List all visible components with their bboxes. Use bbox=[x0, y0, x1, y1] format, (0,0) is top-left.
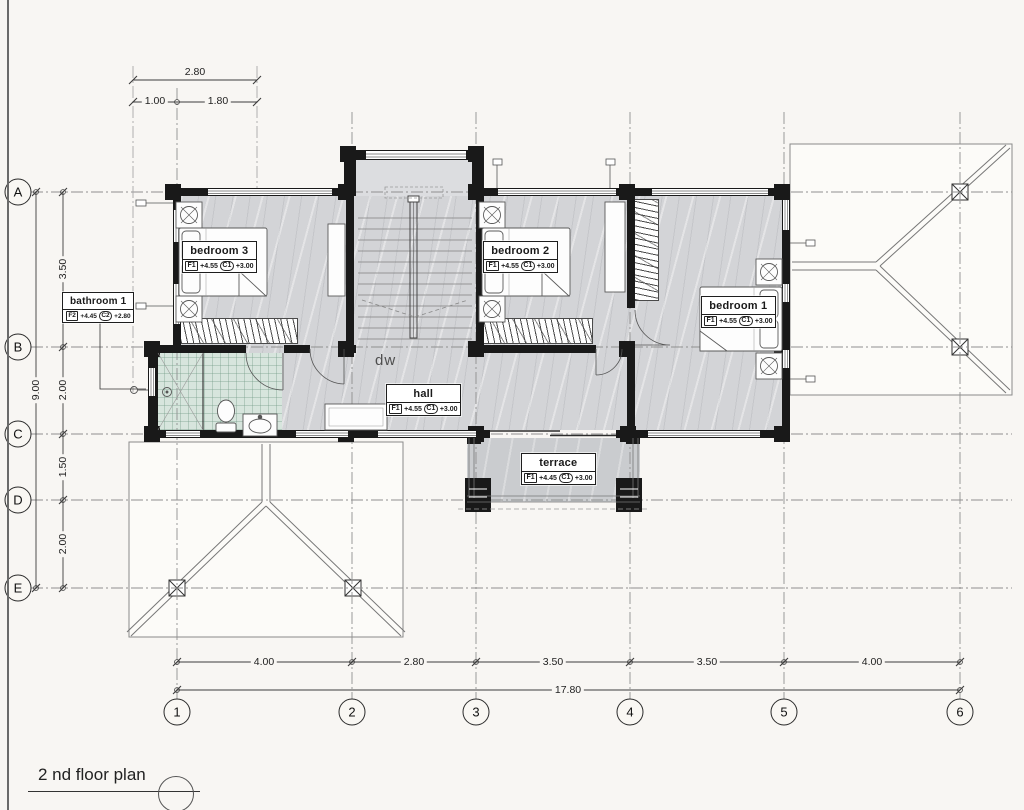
plan-linework bbox=[0, 0, 1024, 810]
dim-bottom-total: 17.80 bbox=[552, 684, 584, 696]
toilet-icon bbox=[218, 400, 235, 422]
floor-level: +4.55 bbox=[200, 263, 218, 270]
room-name: terrace bbox=[522, 454, 595, 472]
room-name: bedroom 2 bbox=[484, 242, 557, 260]
ceiling-level: +3.00 bbox=[537, 263, 555, 270]
roof-left bbox=[127, 442, 405, 637]
dim-bottom-seg-3: 3.50 bbox=[540, 656, 566, 668]
grid-bubble-col-3: 3 bbox=[463, 699, 490, 726]
grid-bubble-col-1: 1 bbox=[164, 699, 191, 726]
room-levels: F1 +4.55 C1 +3.00 bbox=[484, 260, 557, 272]
grid-bubble-row-b: B bbox=[5, 334, 32, 361]
room-name: hall bbox=[387, 385, 460, 403]
floor-tag: F1 bbox=[389, 404, 402, 414]
dim-top-seg-1: 1.00 bbox=[142, 95, 168, 107]
sink-icon bbox=[243, 414, 277, 436]
ceiling-tag: C1 bbox=[521, 261, 535, 271]
room-levels: F1 +4.55 C1 +3.00 bbox=[387, 403, 460, 415]
ceiling-tag: C2 bbox=[99, 311, 112, 321]
page-border-line bbox=[7, 0, 9, 810]
room-levels: F1 +4.55 C1 +3.00 bbox=[183, 260, 256, 272]
ceiling-tag: C1 bbox=[739, 316, 753, 326]
room-name: bedroom 1 bbox=[702, 297, 775, 315]
dim-bottom-seg-4: 3.50 bbox=[694, 656, 720, 668]
floor-tag: F2 bbox=[66, 311, 79, 321]
roof-right bbox=[790, 144, 1012, 395]
ceiling-level: +3.00 bbox=[236, 263, 254, 270]
floor-tag: F1 bbox=[524, 473, 537, 483]
room-label-bedroom-3: bedroom 3 F1 +4.55 C1 +3.00 bbox=[182, 241, 257, 273]
floor-level: +4.55 bbox=[501, 263, 519, 270]
floor-level: +4.45 bbox=[80, 313, 96, 320]
staircase bbox=[358, 187, 472, 339]
bathroom-label-leader bbox=[100, 322, 146, 389]
dim-bottom-seg-2: 2.80 bbox=[401, 656, 427, 668]
ceiling-tag: C1 bbox=[559, 473, 573, 483]
room-label-bathroom-1: bathroom 1 F2 +4.45 C2 +2.80 bbox=[62, 292, 134, 323]
dim-bottom-seg-5: 4.00 bbox=[859, 656, 885, 668]
dim-top-seg-2: 1.80 bbox=[205, 95, 231, 107]
grid-bubble-row-e: E bbox=[5, 575, 32, 602]
room-name: bathroom 1 bbox=[63, 293, 133, 310]
room-label-bedroom-2: bedroom 2 F1 +4.55 C1 +3.00 bbox=[483, 241, 558, 273]
hall-cabinet bbox=[325, 404, 387, 430]
floor-tag: F1 bbox=[486, 261, 499, 271]
grid-bubble-row-c: C bbox=[5, 421, 32, 448]
dim-left-seg-1: 3.50 bbox=[57, 256, 69, 282]
dim-left-seg-3: 1.50 bbox=[57, 454, 69, 480]
ceiling-level: +3.00 bbox=[440, 406, 458, 413]
room-levels: F2 +4.45 C2 +2.80 bbox=[63, 310, 133, 322]
room-levels: F1 +4.45 C1 +3.00 bbox=[522, 472, 595, 484]
ceiling-tag: C1 bbox=[424, 404, 438, 414]
dim-bottom-seg-1: 4.00 bbox=[251, 656, 277, 668]
floor-tag: F1 bbox=[185, 261, 198, 271]
bathroom-door-icon bbox=[246, 353, 283, 390]
ceiling-level: +3.00 bbox=[575, 475, 593, 482]
title-scale-bubble bbox=[158, 776, 194, 810]
grid-bubble-row-a: A bbox=[5, 179, 32, 206]
room-levels: F1 +4.55 C1 +3.00 bbox=[702, 315, 775, 327]
sliding-door-icon bbox=[490, 431, 616, 436]
grid-bubble-col-5: 5 bbox=[771, 699, 798, 726]
room-name: bedroom 3 bbox=[183, 242, 256, 260]
stair-annotation: dw bbox=[375, 352, 396, 369]
grid-bubble-col-6: 6 bbox=[947, 699, 974, 726]
floor-level: +4.45 bbox=[539, 475, 557, 482]
ceiling-level: +2.80 bbox=[114, 313, 130, 320]
sheet-title: 2 nd floor plan bbox=[38, 765, 146, 785]
shower-head-icon bbox=[131, 387, 138, 394]
dim-left-seg-2: 2.00 bbox=[57, 377, 69, 403]
floor-plan-sheet: 1 2 3 4 5 6 A B C D E 2.80 1.00 1.80 4.0… bbox=[0, 0, 1024, 810]
grid-bubble-row-d: D bbox=[5, 487, 32, 514]
floor-level: +4.55 bbox=[719, 318, 737, 325]
floor-tag: F1 bbox=[704, 316, 717, 326]
room-label-hall: hall F1 +4.55 C1 +3.00 bbox=[386, 384, 461, 416]
ceiling-level: +3.00 bbox=[755, 318, 773, 325]
room-label-terrace: terrace F1 +4.45 C1 +3.00 bbox=[521, 453, 596, 485]
floor-level: +4.55 bbox=[404, 406, 422, 413]
dim-left-seg-4: 2.00 bbox=[57, 531, 69, 557]
room-label-bedroom-1: bedroom 1 F1 +4.55 C1 +3.00 bbox=[701, 296, 776, 328]
dim-left-total: 9.00 bbox=[30, 377, 42, 403]
dim-top-total: 2.80 bbox=[182, 66, 208, 78]
ceiling-tag: C1 bbox=[220, 261, 234, 271]
grid-bubble-col-2: 2 bbox=[339, 699, 366, 726]
grid-bubble-col-4: 4 bbox=[617, 699, 644, 726]
